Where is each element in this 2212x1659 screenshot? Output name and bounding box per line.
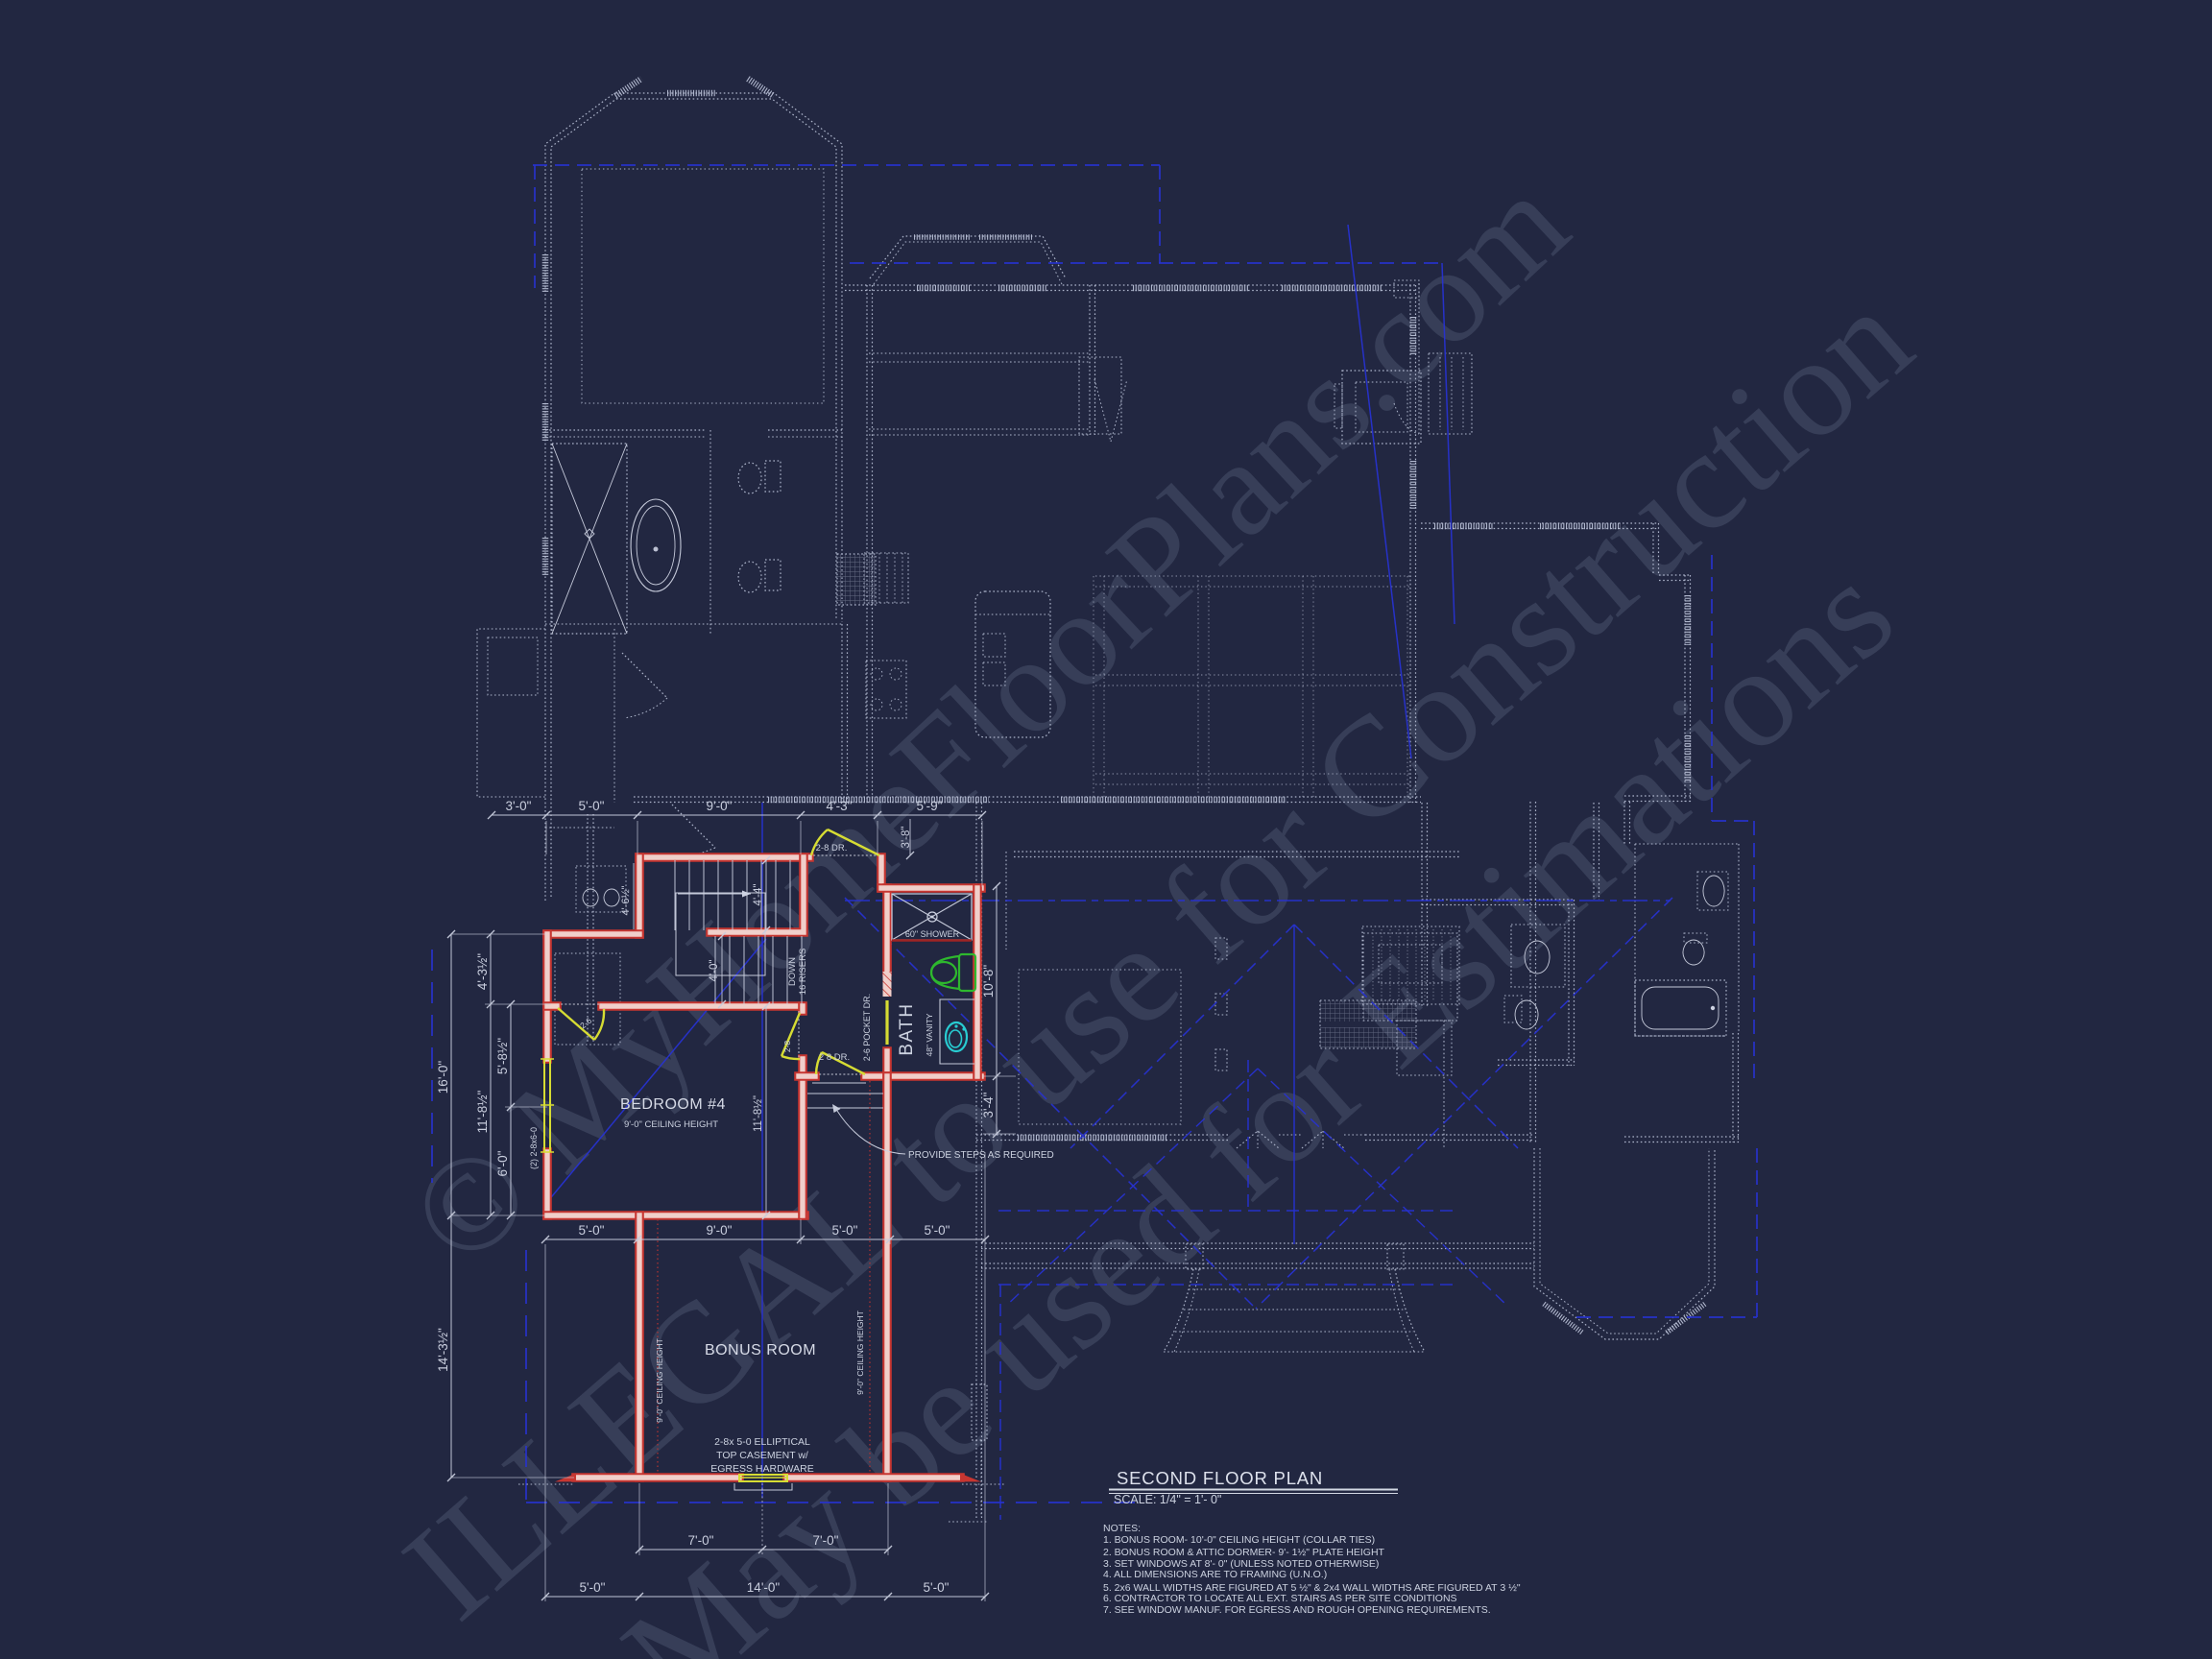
svg-text:2-8x 5-0 ELLIPTICAL: 2-8x 5-0 ELLIPTICAL (714, 1436, 810, 1448)
svg-text:1. BONUS ROOM- 10'-0" CEILING: 1. BONUS ROOM- 10'-0" CEILING HEIGHT (CO… (1103, 1534, 1375, 1546)
svg-text:BEDROOM #4: BEDROOM #4 (620, 1096, 726, 1113)
svg-text:5'-9": 5'-9" (917, 799, 943, 813)
svg-text:(2) 2-8x6-0: (2) 2-8x6-0 (529, 1127, 539, 1169)
svg-text:9'-0" CEILING HEIGHT: 9'-0" CEILING HEIGHT (655, 1338, 664, 1423)
svg-text:9'-0": 9'-0" (707, 1223, 733, 1238)
svg-text:4'-3½": 4'-3½" (475, 953, 490, 990)
svg-text:5'-0": 5'-0" (925, 1223, 950, 1238)
svg-text:5'-0": 5'-0" (924, 1580, 950, 1595)
svg-text:14'-3½": 14'-3½" (436, 1328, 450, 1372)
svg-text:16'-0": 16'-0" (436, 1061, 450, 1094)
svg-text:7'-0": 7'-0" (688, 1533, 714, 1548)
svg-text:BONUS ROOM: BONUS ROOM (705, 1342, 816, 1358)
svg-text:EGRESS HARDWARE: EGRESS HARDWARE (710, 1463, 814, 1475)
svg-text:6'-0": 6'-0" (495, 1150, 510, 1176)
svg-text:2. BONUS ROOM & ATTIC DORMER-: 2. BONUS ROOM & ATTIC DORMER- 9'- 1½" PL… (1103, 1547, 1385, 1558)
svg-text:10'-8": 10'-8" (981, 965, 996, 998)
svg-text:9'-0" CEILING HEIGHT: 9'-0" CEILING HEIGHT (855, 1310, 865, 1395)
svg-text:14'-0": 14'-0" (747, 1580, 781, 1595)
svg-text:PROVIDE STEPS AS REQUIRED: PROVIDE STEPS AS REQUIRED (908, 1150, 1054, 1161)
svg-text:SECOND FLOOR PLAN: SECOND FLOOR PLAN (1117, 1468, 1323, 1488)
svg-text:NOTES:: NOTES: (1103, 1523, 1141, 1534)
svg-text:6. CONTRACTOR TO LOCATE ALL E: 6. CONTRACTOR TO LOCATE ALL EXT. STAIRS … (1103, 1593, 1457, 1604)
svg-text:7. SEE WINDOW MANUF. FOR EGRE: 7. SEE WINDOW MANUF. FOR EGRESS AND ROUG… (1103, 1604, 1491, 1616)
svg-text:TOP CASEMENT w/: TOP CASEMENT w/ (716, 1450, 808, 1461)
svg-text:2-6 POCKET DR.: 2-6 POCKET DR. (862, 994, 872, 1061)
svg-text:11'-8½": 11'-8½" (475, 1090, 490, 1133)
svg-text:DOWN: DOWN (787, 957, 798, 986)
svg-text:2 8 DR.: 2 8 DR. (819, 1052, 850, 1063)
svg-text:16 RISERS: 16 RISERS (798, 949, 808, 996)
svg-text:4'-0": 4'-0" (709, 960, 720, 982)
svg-text:3'-0": 3'-0" (506, 799, 532, 813)
svg-text:60" SHOWER: 60" SHOWER (905, 929, 960, 939)
svg-text:3'-4": 3'-4" (981, 1092, 996, 1118)
svg-text:2-8 DR.: 2-8 DR. (816, 843, 848, 854)
svg-text:5'-8½": 5'-8½" (495, 1038, 510, 1074)
svg-text:11'-8½": 11'-8½" (753, 1095, 764, 1132)
svg-text:4'-4": 4'-4" (753, 884, 764, 906)
svg-text:4'-3": 4'-3" (827, 799, 853, 813)
svg-text:5'-0": 5'-0" (579, 799, 605, 813)
svg-text:2-8: 2-8 (782, 1041, 792, 1053)
svg-text:3'-8": 3'-8" (901, 827, 912, 849)
svg-text:4. ALL DIMENSIONS ARE TO FRAM: 4. ALL DIMENSIONS ARE TO FRAMING (U.N.O.… (1103, 1569, 1327, 1580)
svg-text:SCALE: 1/4" = 1'- 0": SCALE: 1/4" = 1'- 0" (1114, 1493, 1221, 1506)
svg-text:5'-0": 5'-0" (579, 1223, 605, 1238)
svg-text:9'-0": 9'-0" (707, 799, 733, 813)
svg-text:5'-0": 5'-0" (832, 1223, 858, 1238)
svg-text:48" VANITY: 48" VANITY (925, 1013, 934, 1056)
svg-text:9'-0" CEILING HEIGHT: 9'-0" CEILING HEIGHT (624, 1119, 718, 1130)
svg-text:4'-6½": 4'-6½" (620, 885, 632, 915)
svg-text:BATH: BATH (897, 1002, 917, 1055)
svg-text:5'-0": 5'-0" (580, 1580, 606, 1595)
svg-text:7'-0": 7'-0" (813, 1533, 839, 1548)
